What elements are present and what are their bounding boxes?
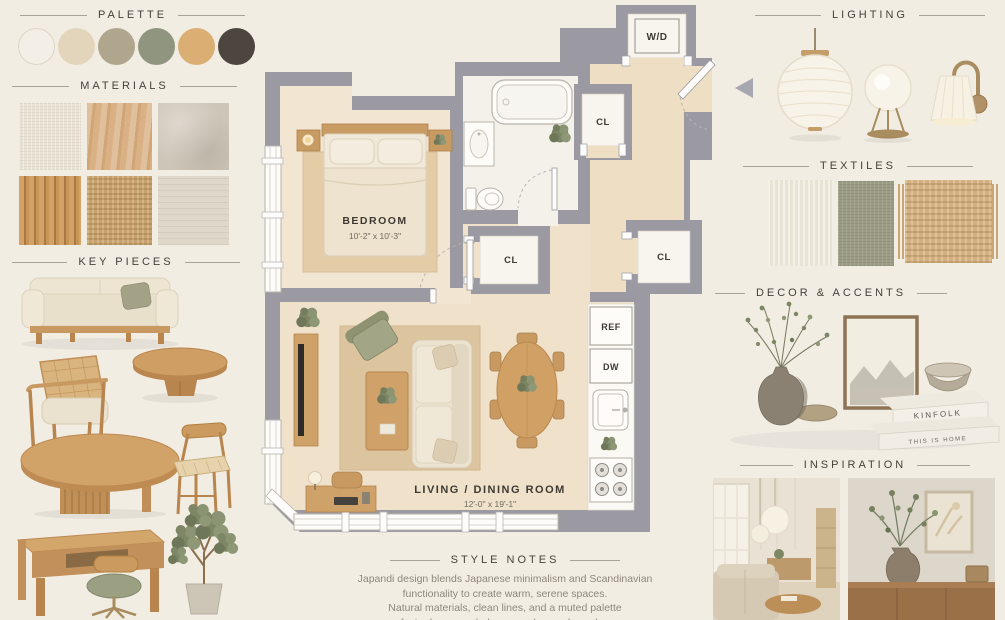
kitchen-sink [593,390,628,430]
header-line [570,560,620,561]
living-dims: 12'-0" x 19'-1" [464,499,516,509]
textile-cream-linen [768,180,832,266]
textile-fringed-jute [905,180,992,263]
key-piece-wood-desk [18,530,164,616]
washer-dryer-label: W/D [647,32,668,43]
decor-ceramic-vase [758,367,807,425]
palette-swatch-row [18,28,255,65]
key-piece-round-coffee-table [133,348,227,403]
inspiration-photo-sideboard-art [848,478,995,620]
closet-hall: CL [574,84,632,160]
bathtub [492,80,572,124]
header-line [12,262,67,263]
japandi-moodboard: PALETTE MATERIALS KEY PIECES LIGHTING TE… [0,0,1005,620]
header-line [919,15,985,16]
style-notes-line-3: Natural materials, clean lines, and a mu… [292,601,718,616]
lighting-title: LIGHTING [832,9,908,21]
kitchen: REF DW [588,304,634,510]
lighting-paper-lantern-pendant [778,28,852,142]
header-line [20,15,87,16]
palette-swatch-beige [58,28,95,65]
textile-sage-green-weave [838,181,894,266]
living-label: LIVING / DINING ROOM [414,484,566,496]
lighting-header: LIGHTING [755,9,985,21]
lighting-canvas [755,26,1005,145]
palette-swatch-cream [18,28,55,65]
style-notes-header: STYLE NOTES [390,554,620,566]
closet-entry: CL [622,220,702,294]
washer-dryer-closet: W/D [622,14,692,66]
lighting-brass-wall-sconce [931,63,987,127]
material-beige-limestone [158,103,229,170]
style-notes-line-2: functionality to create warm, serene spa… [292,587,718,602]
header-line [907,166,973,167]
lighting-globe-tripod-table-lamp [864,65,912,143]
inspiration-title: INSPIRATION [804,459,906,471]
header-line [12,86,69,87]
header-line [917,465,970,466]
inspiration-photo-living-room [713,478,840,620]
header-line [390,560,440,561]
palette-swatch-sage [138,28,175,65]
stove [590,458,632,502]
palette-header: PALETTE [20,9,245,21]
palette-swatch-oak [178,28,215,65]
palette-title: PALETTE [98,9,167,21]
palette-swatch-charcoal [218,28,255,65]
entry-arrow-icon [735,78,753,98]
decor-ceramic-bowl [925,363,971,391]
bathroom-sink [464,122,494,166]
jute-fringe-right [992,184,999,259]
nightstand-right [429,130,452,151]
header-line [917,293,947,294]
header-line [185,262,240,263]
header-line [180,86,237,87]
jute-fringe-left [898,184,905,259]
key-piece-linen-sofa [22,278,178,350]
key-piece-desk-chair [87,556,141,618]
closet-entry-label: CL [657,252,671,263]
closet-mid: CL [464,226,550,294]
decor-canvas: KINFOLK THIS IS HOME [713,298,1005,458]
decor-book-stack: KINFOLK THIS IS HOME [870,390,999,450]
key-pieces-canvas [0,268,255,620]
inspiration-photo-sideboard [848,478,995,620]
key-piece-spindle-dining-chair [174,422,230,516]
style-notes-line-4: foster harmony, balance, and everyday ca… [292,616,718,620]
key-pieces-title: KEY PIECES [78,256,173,268]
palette-swatch-taupe [98,28,135,65]
materials-header: MATERIALS [12,80,237,92]
closet-mid-label: CL [504,255,518,266]
style-notes-line-1: Japandi design blends Japanese minimalis… [292,572,718,587]
bedroom-label: BEDROOM [342,215,407,227]
toilet [466,188,503,210]
decor-branches [748,305,828,368]
materials-title: MATERIALS [80,80,169,92]
style-notes-text: Japandi design blends Japanese minimalis… [292,572,718,620]
material-linen-weave [19,103,81,170]
floor-plan: W/D CL CL CL [255,0,765,545]
bedroom-window [262,146,283,292]
textiles-header: TEXTILES [743,160,973,172]
textiles-title: TEXTILES [820,160,896,172]
inspiration-header: INSPIRATION [740,459,970,471]
key-piece-olive-tree [168,504,238,614]
inspiration-photo-living-room-art [713,478,840,620]
closet-hall-label: CL [596,117,610,128]
fridge-label: REF [601,322,621,332]
material-travertine-stone [158,176,229,245]
nightstand-left [297,130,320,151]
bedroom-dims: 10'-2" x 10'-3" [349,231,401,241]
material-fluted-wood-slats [19,176,81,245]
material-woven-jute [87,176,152,245]
style-notes-title: STYLE NOTES [451,554,560,566]
dishwasher-label: DW [603,362,619,372]
header-line [178,15,245,16]
decor-ink-landscape-art [845,317,917,408]
sofa [412,340,472,468]
coffee-table [366,372,408,450]
tv-console [294,334,318,446]
key-piece-oval-dining-table [21,434,179,519]
key-pieces-header: KEY PIECES [12,256,240,268]
material-white-oak-wood [87,103,152,170]
